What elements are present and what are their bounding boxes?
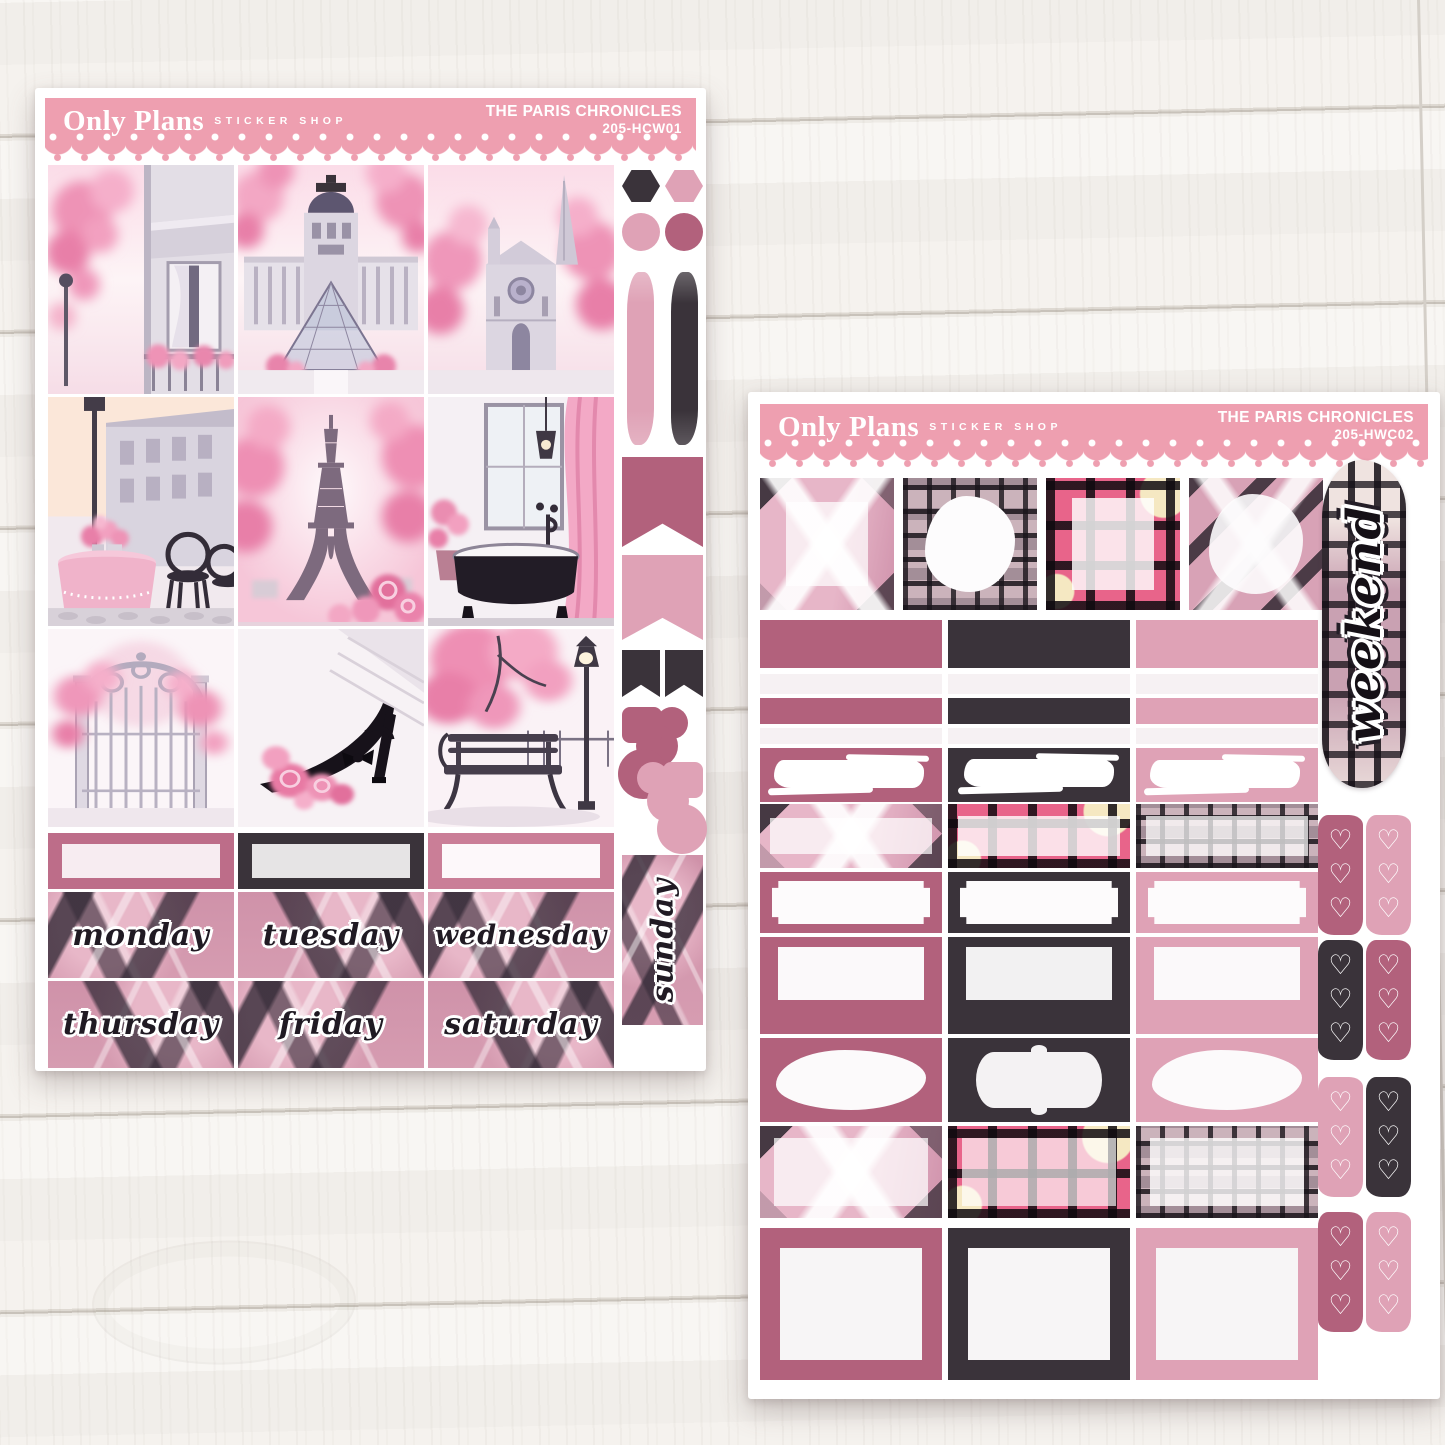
- heart-icon: ♡: [1328, 893, 1352, 925]
- day-sticker-saturday: saturday: [428, 981, 614, 1068]
- lace-dots: [49, 133, 696, 141]
- ticket-label: [960, 881, 1118, 924]
- sticker-sheet-hcw01: Only PlansSTICKER SHOP THE PARIS CHRONIC…: [35, 88, 706, 1071]
- hexagon-pink-icon: [665, 170, 703, 202]
- scallop-corner-pink: [637, 762, 703, 843]
- circle-pink-icon: [622, 213, 660, 251]
- weekend-rotated-text: weekend: [1320, 456, 1408, 792]
- white-brush-stroke: [1150, 760, 1300, 788]
- scribble-box-pink: [1136, 1038, 1318, 1122]
- white-overlay: [1072, 498, 1154, 590]
- ticket-label: [772, 881, 930, 924]
- bordered-box-pink: [1136, 1228, 1318, 1380]
- tile-paris-balcony: [48, 165, 234, 394]
- heart-icon: ♡: [1376, 1256, 1400, 1288]
- white-field: [966, 947, 1112, 1000]
- plaid-washi-x: [760, 804, 942, 868]
- white-blob-overlay: [1209, 494, 1303, 594]
- brand-subtitle: STICKER SHOP: [929, 421, 1062, 433]
- hexagon-dark-icon: [622, 170, 660, 202]
- collection-name: THE PARIS CHRONICLES: [486, 103, 682, 120]
- brush-box-dark: [948, 748, 1130, 802]
- white-overlay: [1146, 816, 1308, 856]
- brush-stroke-dark: [671, 272, 698, 445]
- white-scribble-label: [1152, 1050, 1302, 1110]
- plaid-square-x: [760, 478, 894, 610]
- thin-bar-pink: [1136, 698, 1318, 724]
- white-field: [968, 1248, 1110, 1360]
- heart-tab-mauve: ♡♡♡: [1366, 940, 1411, 1060]
- heart-icon: ♡: [1376, 1155, 1400, 1187]
- header-bar-mauve: [760, 620, 942, 668]
- heart-icon: ♡: [1376, 825, 1400, 857]
- scribble-box-mauve: [760, 1038, 942, 1122]
- ticket-label: [1148, 881, 1306, 924]
- brush-box-mauve: [760, 748, 942, 802]
- heart-tab-pink: ♡♡♡: [1366, 815, 1411, 935]
- heart-icon: ♡: [1376, 984, 1400, 1016]
- plaid-overlay-grid: [1136, 1126, 1318, 1218]
- washi-strip: [948, 674, 1130, 694]
- sheet-header: Only PlansSTICKER SHOP THE PARIS CHRONIC…: [45, 98, 696, 142]
- heart-icon: ♡: [1328, 1121, 1352, 1153]
- heart-icon: ♡: [1328, 1290, 1352, 1322]
- label-box-pink: [428, 833, 614, 889]
- plaid-overlay-x: [760, 1126, 942, 1218]
- white-overlay: [774, 1138, 928, 1206]
- heart-icon: ♡: [1328, 1087, 1352, 1119]
- day-label: saturday: [444, 1007, 598, 1042]
- heart-tab-mauve: ♡♡♡: [1318, 1212, 1363, 1332]
- product-photo: Only PlansSTICKER SHOP THE PARIS CHRONIC…: [0, 0, 1445, 1445]
- heart-icon: ♡: [1328, 1222, 1352, 1254]
- white-overlay: [958, 816, 1120, 856]
- day-label: monday: [72, 918, 209, 953]
- plaid-washi-red: [948, 804, 1130, 868]
- white-brush-stroke: [964, 759, 1114, 787]
- day-label: thursday: [63, 1007, 219, 1042]
- thin-bar-dark: [948, 698, 1130, 724]
- plaid-washi-grid: [1136, 804, 1318, 868]
- half-box-dark: [948, 937, 1130, 1034]
- heart-icon: ♡: [1328, 984, 1352, 1016]
- label-box-dark: [238, 833, 424, 889]
- pennant-dark-left: [622, 650, 660, 697]
- label-box-mauve: [48, 833, 234, 889]
- day-label: friday: [279, 1007, 383, 1042]
- heart-icon: ♡: [1328, 1256, 1352, 1288]
- brand-subtitle: STICKER SHOP: [214, 115, 347, 127]
- ticket-box-mauve: [760, 872, 942, 933]
- tile-street-cafe: [48, 397, 234, 626]
- day-label: tuesday: [263, 918, 400, 953]
- brush-stroke-pink: [627, 272, 654, 445]
- pennant-dark-right: [665, 650, 703, 697]
- label-box-field: [62, 844, 220, 878]
- washi-strip: [760, 728, 942, 744]
- day-sticker-tuesday: tuesday: [238, 892, 424, 978]
- white-scribble-label: [776, 1050, 926, 1110]
- white-overlay: [770, 818, 932, 854]
- heart-icon: ♡: [1376, 1290, 1400, 1322]
- lace-dots: [764, 439, 1428, 447]
- weekend-sticker: weekend: [1320, 456, 1408, 792]
- half-box-pink: [1136, 937, 1318, 1034]
- white-overlay: [962, 1138, 1116, 1206]
- tile-garden-gate: [48, 629, 234, 827]
- tile-cathedral: [428, 165, 614, 394]
- heart-icon: ♡: [1376, 893, 1400, 925]
- tile-eiffel-tower: [238, 397, 424, 626]
- sunday-rotated-text: sunday: [622, 855, 703, 1025]
- lace-drop-dots: [45, 154, 696, 163]
- bordered-box-dark: [948, 1228, 1130, 1380]
- heart-icon: ♡: [1376, 1222, 1400, 1254]
- thin-bar-mauve: [760, 698, 942, 724]
- white-field: [780, 1248, 922, 1360]
- collection-name: THE PARIS CHRONICLES: [1218, 409, 1414, 426]
- collection-title: THE PARIS CHRONICLES 205-HCW01: [486, 103, 682, 137]
- plaid-square-red: [1046, 478, 1180, 610]
- tile-louvre-pyramid: [238, 165, 424, 394]
- brush-box-pink: [1136, 748, 1318, 802]
- washi-strip: [1136, 728, 1318, 744]
- day-sticker-sunday: sunday: [622, 855, 703, 1025]
- sticker-sheet-hwc02: Only PlansSTICKER SHOP THE PARIS CHRONIC…: [748, 392, 1440, 1399]
- label-box-field: [252, 844, 410, 878]
- washi-strip: [948, 728, 1130, 744]
- tile-stiletto-heel: [238, 629, 424, 827]
- banner-flag-mauve: [622, 457, 703, 547]
- ticket-box-pink: [1136, 872, 1318, 933]
- washi-strip: [760, 674, 942, 694]
- plaid-square-diagonal: [1189, 478, 1323, 610]
- fancy-frame-label: [976, 1052, 1102, 1108]
- white-field: [1156, 1248, 1298, 1360]
- heart-icon: ♡: [1376, 1087, 1400, 1119]
- day-sticker-friday: friday: [238, 981, 424, 1068]
- day-label: sunday: [645, 878, 680, 1002]
- white-overlay: [786, 502, 868, 586]
- heart-tab-mauve: ♡♡♡: [1318, 815, 1363, 935]
- white-brush-stroke: [774, 760, 924, 788]
- heart-icon: ♡: [1376, 1018, 1400, 1050]
- heart-icon: ♡: [1328, 1018, 1352, 1050]
- tile-bathtub: [428, 397, 614, 626]
- banner-flag-pink: [622, 555, 703, 640]
- heart-tab-pink: ♡♡♡: [1318, 1077, 1363, 1197]
- label-box-field: [442, 844, 600, 878]
- heart-icon: ♡: [1328, 859, 1352, 891]
- heart-icon: ♡: [1376, 859, 1400, 891]
- heart-icon: ♡: [1376, 950, 1400, 982]
- plaid-overlay-red: [948, 1126, 1130, 1218]
- header-bar-dark: [948, 620, 1130, 668]
- heart-icon: ♡: [1328, 1155, 1352, 1187]
- heart-icon: ♡: [1328, 950, 1352, 982]
- day-sticker-thursday: thursday: [48, 981, 234, 1068]
- heart-tab-pink: ♡♡♡: [1366, 1212, 1411, 1332]
- header-bar-pink: [1136, 620, 1318, 668]
- washi-strip: [1136, 674, 1318, 694]
- heart-icon: ♡: [1328, 825, 1352, 857]
- white-overlay: [1150, 1138, 1304, 1206]
- fancy-frame-box-dark: [948, 1038, 1130, 1122]
- heart-tab-dark: ♡♡♡: [1318, 940, 1363, 1060]
- ticket-box-dark: [948, 872, 1130, 933]
- circle-mauve-icon: [665, 213, 703, 251]
- wood-knot: [91, 1238, 358, 1368]
- collection-title: THE PARIS CHRONICLES 205-HWC02: [1218, 409, 1414, 443]
- day-sticker-wednesday: wednesday: [428, 892, 614, 978]
- white-blob-overlay: [925, 496, 1015, 592]
- tile-park-bench: [428, 629, 614, 827]
- day-label: wednesday: [435, 920, 607, 951]
- bordered-box-mauve: [760, 1228, 942, 1380]
- plaid-square-grid: [903, 478, 1037, 610]
- heart-icon: ♡: [1376, 1121, 1400, 1153]
- white-field: [778, 947, 924, 1000]
- heart-tab-dark: ♡♡♡: [1366, 1077, 1411, 1197]
- weekend-label: weekend: [1337, 506, 1392, 743]
- white-field: [1154, 947, 1300, 1000]
- sheet-header: Only PlansSTICKER SHOP THE PARIS CHRONIC…: [760, 404, 1428, 448]
- half-box-mauve: [760, 937, 942, 1034]
- day-sticker-monday: monday: [48, 892, 234, 978]
